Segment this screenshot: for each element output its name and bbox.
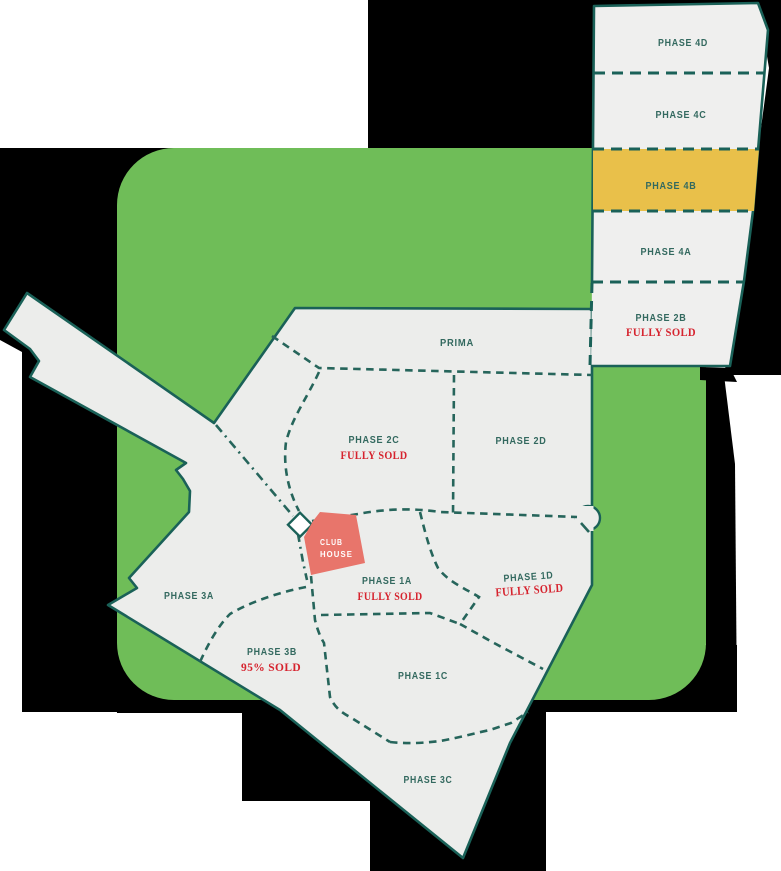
svg-text:PHASE 4A: PHASE 4A xyxy=(641,247,692,258)
svg-text:HOUSE: HOUSE xyxy=(320,549,353,559)
svg-text:PHASE 4C: PHASE 4C xyxy=(656,110,707,121)
svg-text:PHASE 4D: PHASE 4D xyxy=(658,38,708,49)
svg-text:PHASE 3C: PHASE 3C xyxy=(404,775,453,786)
svg-text:FULLY SOLD: FULLY SOLD xyxy=(341,448,408,462)
svg-text:PHASE 3A: PHASE 3A xyxy=(164,591,214,602)
svg-text:PHASE 2D: PHASE 2D xyxy=(496,436,547,447)
svg-text:PHASE 2B: PHASE 2B xyxy=(636,313,687,324)
svg-text:PHASE 3B: PHASE 3B xyxy=(247,647,297,658)
svg-text:95% SOLD: 95% SOLD xyxy=(241,660,301,674)
svg-text:PRIMA: PRIMA xyxy=(440,338,474,349)
svg-text:FULLY SOLD: FULLY SOLD xyxy=(358,589,423,603)
svg-text:FULLY SOLD: FULLY SOLD xyxy=(626,325,696,339)
svg-text:PHASE 1A: PHASE 1A xyxy=(362,576,412,587)
svg-text:PHASE 1C: PHASE 1C xyxy=(398,671,448,682)
svg-text:CLUB: CLUB xyxy=(320,537,343,547)
svg-text:PHASE 4B: PHASE 4B xyxy=(646,181,697,192)
svg-text:PHASE 2C: PHASE 2C xyxy=(349,435,400,446)
